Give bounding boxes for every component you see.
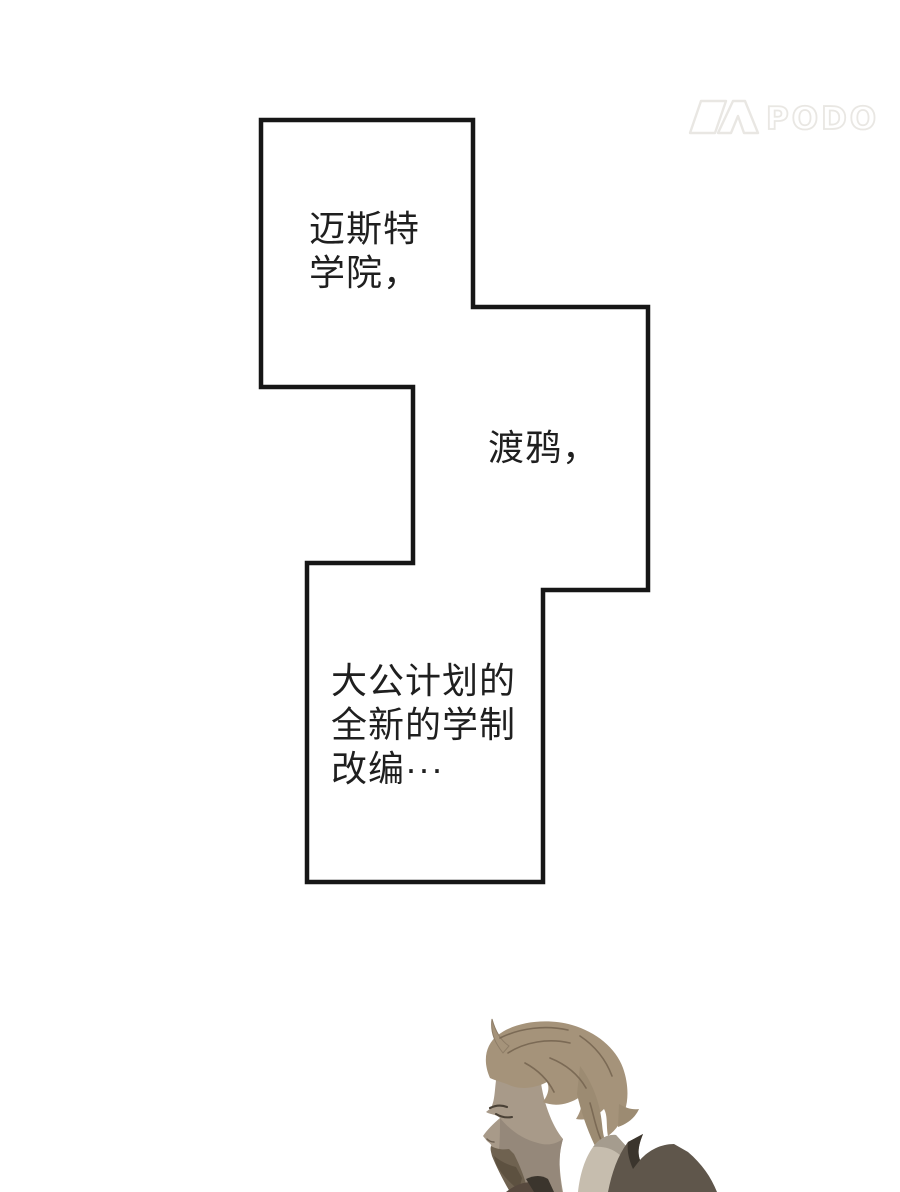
hair-flick (618, 1104, 639, 1127)
bubble-text-raven: 渡鸦， (488, 426, 599, 470)
bubble-text-plan: 大公计划的 全新的学制 改编··· (331, 659, 516, 791)
character-portrait (430, 1008, 760, 1192)
bubble-text-academy: 迈斯特 学院， (309, 207, 420, 295)
comic-page: PODO 迈斯特 学院， 渡鸦， 大公计划的 全新的学制 改编··· (0, 0, 900, 1192)
coat-right (608, 1134, 717, 1192)
